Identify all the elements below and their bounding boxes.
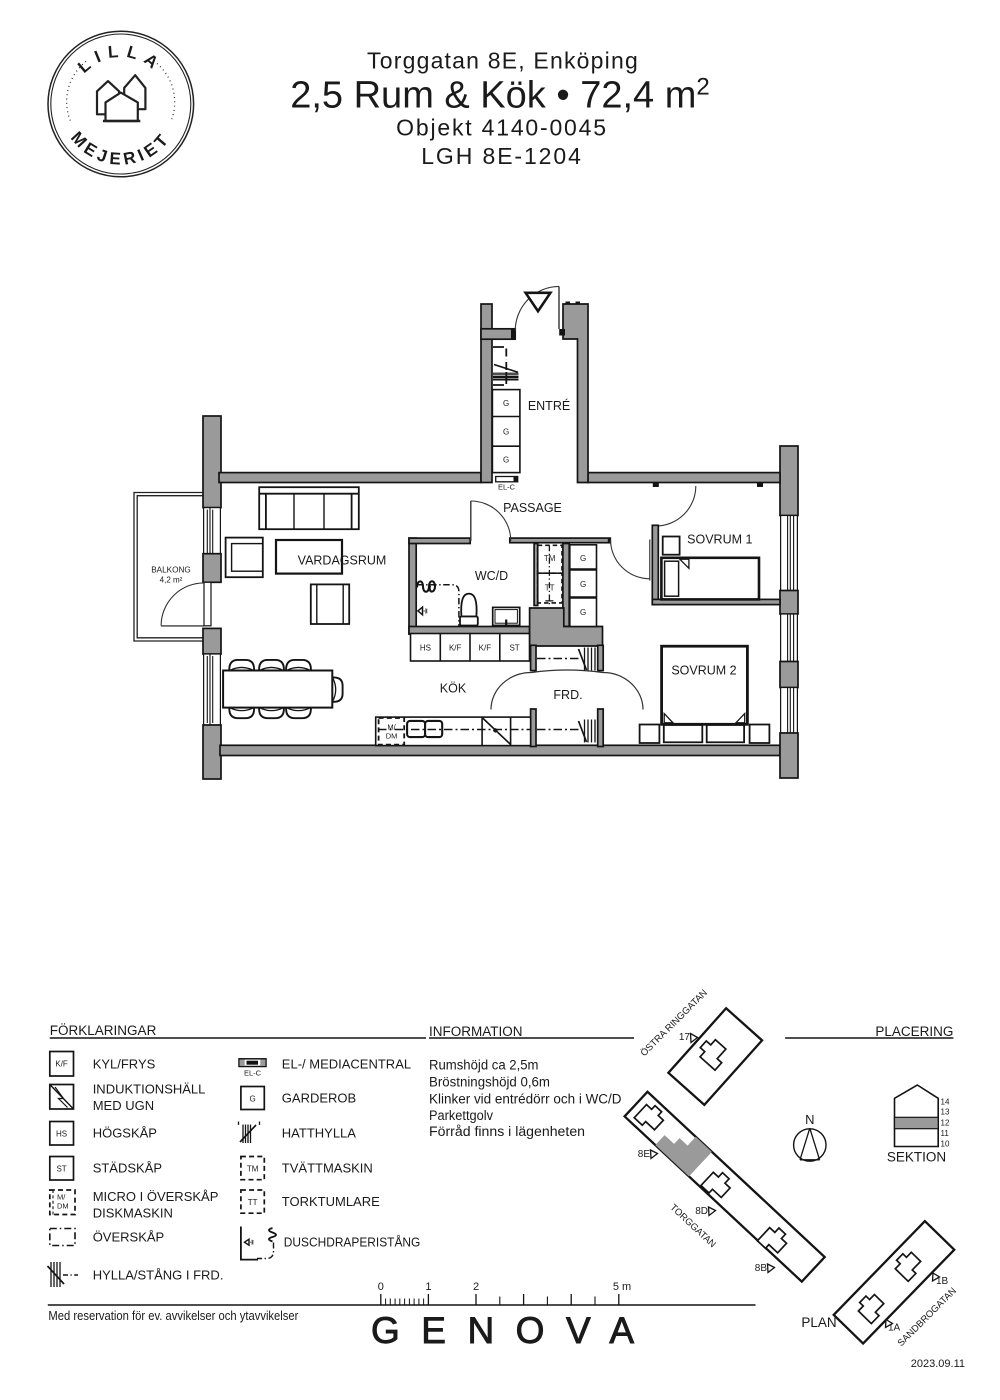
- svg-text:FÖRKLARINGAR: FÖRKLARINGAR: [50, 1023, 157, 1038]
- svg-text:DISKMASKIN: DISKMASKIN: [93, 1206, 173, 1221]
- svg-text:HÖGSKÅP: HÖGSKÅP: [93, 1126, 157, 1141]
- svg-text:DM: DM: [57, 1202, 69, 1211]
- svg-text:PASSAGE: PASSAGE: [503, 501, 562, 515]
- svg-text:MED UGN: MED UGN: [93, 1098, 154, 1113]
- svg-text:N: N: [805, 1112, 814, 1127]
- svg-text:4,2 m²: 4,2 m²: [160, 576, 183, 585]
- svg-text:VARDAGSRUM: VARDAGSRUM: [298, 554, 387, 568]
- svg-text:TORKTUMLARE: TORKTUMLARE: [282, 1194, 380, 1209]
- svg-text:INDUKTIONSHÄLL: INDUKTIONSHÄLL: [93, 1082, 206, 1097]
- svg-text:K/F: K/F: [479, 644, 492, 653]
- svg-text:PLACERING: PLACERING: [875, 1024, 953, 1039]
- svg-text:SOVRUM 2: SOVRUM 2: [671, 664, 736, 678]
- svg-text:LILLA: LILLA: [74, 42, 167, 77]
- svg-text:ENTRÉ: ENTRÉ: [528, 398, 570, 413]
- svg-text:TVÄTTMASKIN: TVÄTTMASKIN: [282, 1161, 373, 1176]
- svg-text:G: G: [503, 456, 509, 465]
- svg-text:K/F: K/F: [449, 644, 462, 653]
- svg-text:TT: TT: [248, 1198, 258, 1207]
- svg-text:Bröstningshöjd 0,6m: Bröstningshöjd 0,6m: [429, 1075, 550, 1090]
- svg-text:ST: ST: [56, 1165, 66, 1174]
- svg-text:TM: TM: [247, 1165, 259, 1174]
- svg-text:2,5 Rum & Kök • 72,4 m2: 2,5 Rum & Kök • 72,4 m2: [290, 74, 710, 117]
- svg-text:Förråd finns i lägenheten: Förråd finns i lägenheten: [429, 1124, 585, 1139]
- svg-text:Parkettgolv: Parkettgolv: [429, 1108, 493, 1123]
- svg-text:TM: TM: [544, 554, 556, 563]
- svg-text:17: 17: [679, 1032, 691, 1043]
- svg-text:Med reservation för ev. avvike: Med reservation för ev. avvikelser och y…: [48, 1309, 298, 1323]
- svg-text:FRD.: FRD.: [553, 688, 582, 702]
- svg-text:KYL/FRYS: KYL/FRYS: [93, 1057, 156, 1072]
- svg-text:12: 12: [941, 1119, 950, 1128]
- svg-text:MICRO I ÖVERSKÅP: MICRO I ÖVERSKÅP: [93, 1189, 219, 1204]
- svg-text:Torggatan 8E, Enköping: Torggatan 8E, Enköping: [367, 48, 639, 74]
- svg-text:13: 13: [941, 1108, 950, 1117]
- svg-text:TT: TT: [545, 584, 555, 593]
- svg-text:HS: HS: [420, 644, 431, 653]
- svg-text:ÖVERSKÅP: ÖVERSKÅP: [93, 1230, 165, 1245]
- svg-text:K/F: K/F: [55, 1060, 68, 1069]
- svg-text:0: 0: [378, 1281, 384, 1293]
- svg-text:EL-C: EL-C: [498, 483, 516, 492]
- svg-text:HATTHYLLA: HATTHYLLA: [282, 1126, 356, 1141]
- svg-text:2023.09.11: 2023.09.11: [911, 1358, 965, 1370]
- svg-text:SOVRUM 1: SOVRUM 1: [687, 533, 752, 547]
- svg-text:2: 2: [473, 1281, 479, 1293]
- svg-text:DM: DM: [386, 732, 398, 741]
- svg-text:G: G: [249, 1095, 255, 1104]
- svg-text:WC/D: WC/D: [475, 569, 508, 583]
- svg-text:Klinker vid entrédörr och i WC: Klinker vid entrédörr och i WC/D: [429, 1091, 622, 1106]
- svg-text:BALKONG: BALKONG: [151, 566, 191, 575]
- svg-text:G: G: [580, 608, 586, 617]
- svg-text:Objekt 4140-0045: Objekt 4140-0045: [396, 115, 608, 141]
- svg-text:G: G: [580, 580, 586, 589]
- svg-text:ST: ST: [509, 644, 519, 653]
- svg-text:HS: HS: [56, 1130, 67, 1139]
- svg-text:5 m: 5 m: [613, 1281, 631, 1293]
- svg-text:Rumshöjd ca 2,5m: Rumshöjd ca 2,5m: [429, 1058, 539, 1073]
- svg-text:GENOVA: GENOVA: [371, 1310, 656, 1351]
- svg-text:HYLLA/STÅNG I FRD.: HYLLA/STÅNG I FRD.: [93, 1268, 224, 1283]
- svg-text:1: 1: [425, 1281, 431, 1293]
- svg-text:11: 11: [941, 1129, 950, 1138]
- svg-text:DUSCHDRAPERISTÅNG: DUSCHDRAPERISTÅNG: [284, 1235, 421, 1250]
- svg-text:LGH 8E-1204: LGH 8E-1204: [421, 143, 583, 169]
- svg-text:INFORMATION: INFORMATION: [429, 1024, 523, 1039]
- svg-text:G: G: [580, 554, 586, 563]
- svg-text:KÖK: KÖK: [440, 682, 467, 696]
- svg-text:G: G: [503, 399, 509, 408]
- svg-text:10: 10: [941, 1140, 950, 1149]
- svg-text:EL-/ MEDIACENTRAL: EL-/ MEDIACENTRAL: [282, 1057, 411, 1072]
- svg-text:M/: M/: [57, 1193, 66, 1202]
- svg-text:STÄDSKÅP: STÄDSKÅP: [93, 1161, 162, 1176]
- svg-text:8D: 8D: [695, 1206, 708, 1217]
- svg-text:PLAN: PLAN: [801, 1315, 836, 1330]
- svg-text:EL-C: EL-C: [244, 1069, 262, 1078]
- svg-text:G: G: [503, 428, 509, 437]
- svg-text:GARDEROB: GARDEROB: [282, 1091, 356, 1106]
- svg-text:SEKTION: SEKTION: [887, 1150, 946, 1165]
- svg-text:14: 14: [941, 1098, 950, 1107]
- svg-text:8E: 8E: [638, 1149, 651, 1160]
- svg-text:8B: 8B: [755, 1263, 768, 1274]
